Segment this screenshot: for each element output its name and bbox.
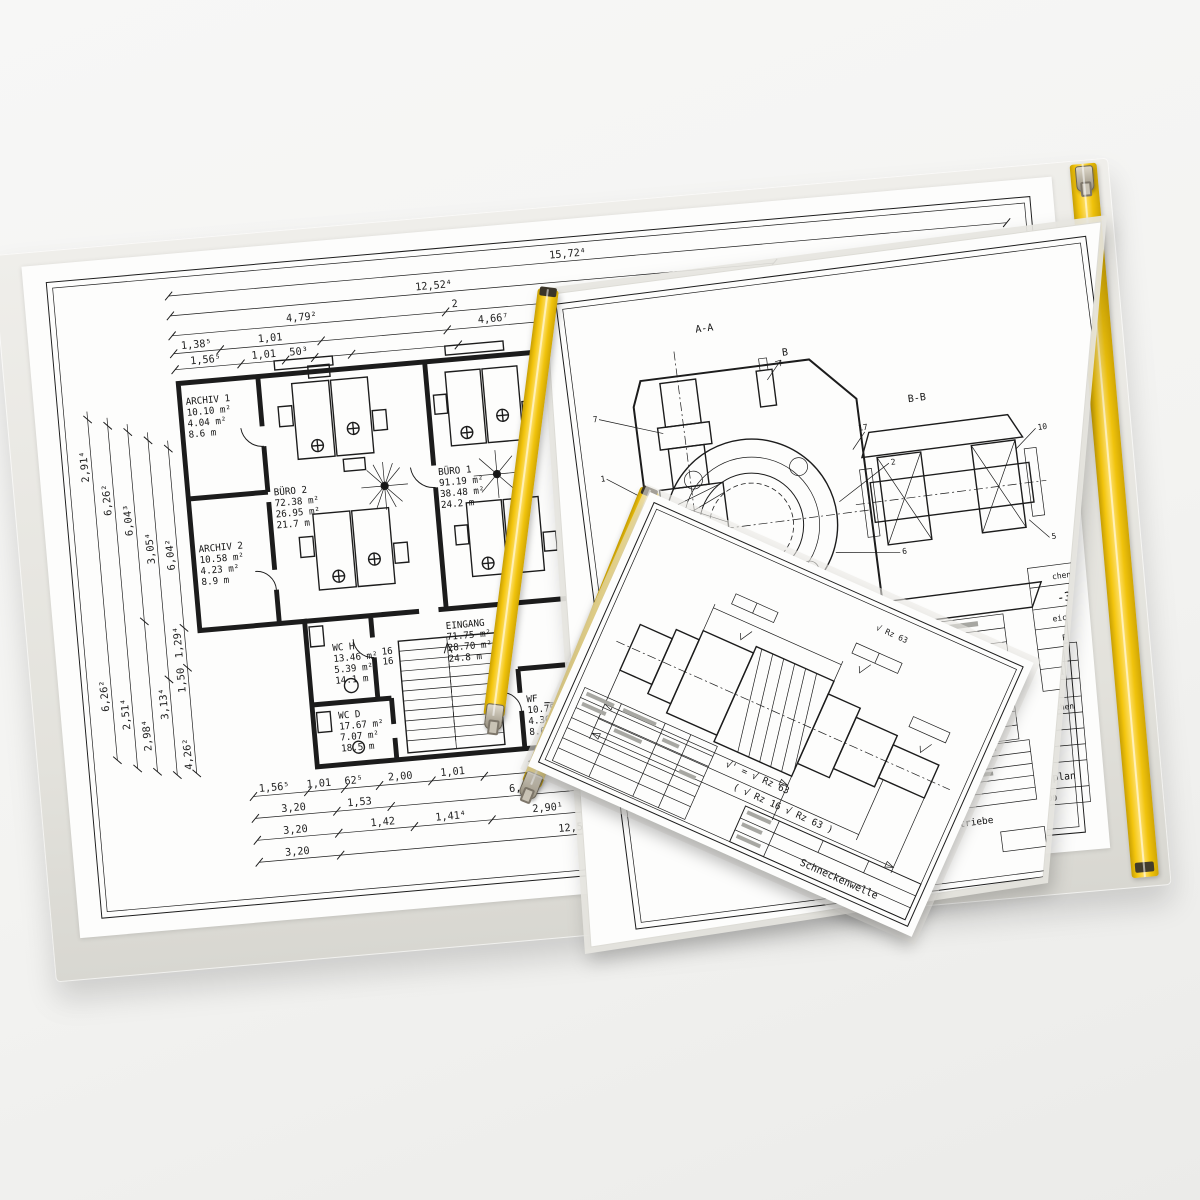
dim-label: 3,20 <box>281 801 307 815</box>
dim-label: 62⁵ <box>344 774 363 788</box>
dim-label: 6,04² <box>163 539 178 572</box>
dim-label: 3,13⁴ <box>157 688 172 721</box>
title-cell: Rev <box>1067 671 1083 682</box>
dim-label: 1,56⁵ <box>258 780 290 795</box>
area-label: 18.5 m <box>341 741 376 755</box>
dim-label: 1,01 <box>257 331 283 345</box>
dim-label: 2,98⁴ <box>140 719 155 752</box>
dim-label: 2 <box>451 298 458 311</box>
dim-label: 1,01 <box>306 777 332 791</box>
dim-label: 1,41⁴ <box>435 809 467 824</box>
area-label: 24.2 m <box>441 497 476 511</box>
dim-label: 4,79² <box>286 310 318 325</box>
zip-slider-icon[interactable] <box>1075 165 1095 192</box>
dim-label: 2,00 <box>388 769 414 783</box>
dim-label: 3,20 <box>283 823 309 837</box>
zip-slider-icon[interactable] <box>484 703 505 731</box>
area-label: 8.9 m <box>201 575 230 589</box>
section-label: B-B <box>907 392 926 405</box>
dim-label: 3,20 <box>285 845 311 859</box>
dim-label: 50³ <box>289 345 308 359</box>
product-photo: 15,72⁴ 12,52⁴ 4,79² 2 6,03³ 1,9 1,38⁵ 1,… <box>0 0 1200 1200</box>
dimension-chains-left: 2,91⁴ 6,26² 6,26² 2,51⁴ 6,04³ 2,98⁴ 3,05… <box>74 404 201 785</box>
dim-label: 6,04³ <box>121 504 136 537</box>
dim-label: 4,66⁷ <box>477 311 509 326</box>
stair-count-label: 16 <box>382 656 394 668</box>
dim-label: 1,56⁵ <box>190 353 222 368</box>
area-label: 21.7 m <box>276 517 311 531</box>
dim-label: 4,26² <box>181 738 196 771</box>
area-label: 8.6 m <box>188 427 217 441</box>
callout: 10 <box>1037 422 1048 432</box>
callout: 17 <box>858 423 869 433</box>
dim-label: 6,26² <box>100 484 115 517</box>
dim-label: 1,01 <box>440 765 466 779</box>
dim-label: 1,53 <box>347 795 373 809</box>
dim-label: 1,01 <box>251 348 277 362</box>
dim-label: 2,91⁴ <box>78 451 93 484</box>
section-label: A-A <box>695 322 714 335</box>
area-label: 14.1 m <box>335 673 370 687</box>
area-label: 24.8 m <box>448 651 483 665</box>
dim-label: 2,51⁴ <box>119 698 134 731</box>
dim-label: 12,52⁴ <box>415 278 453 293</box>
dim-label: 6,26² <box>98 680 113 713</box>
dim-label: 3,05⁴ <box>143 532 158 565</box>
dim-label: 1,50 <box>175 667 189 693</box>
dim-label: 1,42 <box>370 815 396 829</box>
surface-finish-mark: √ Rz 63 <box>875 623 910 645</box>
dim-label: 1,29⁴ <box>171 626 186 659</box>
dim-label: 1,38⁵ <box>181 337 213 352</box>
